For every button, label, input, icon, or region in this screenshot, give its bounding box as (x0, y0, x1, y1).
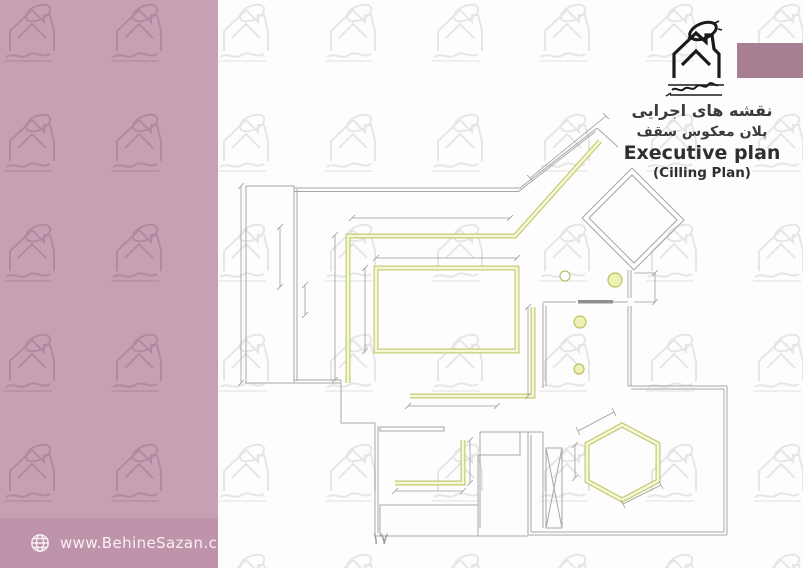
title-farsi-line2: پلان معکوس سقف (612, 122, 792, 142)
title-block: نقشه های اجرایی پلان معکوس سقف Executive… (612, 100, 792, 182)
dimension-lines (238, 113, 663, 508)
wall-thick-bar (578, 300, 613, 304)
title-english-sub: (Cilling Plan) (612, 165, 792, 182)
accent-rectangle (737, 43, 803, 78)
globe-icon (29, 532, 51, 554)
plan-walls (246, 128, 727, 536)
page-number: ۱۷ (352, 529, 408, 548)
title-farsi-line1: نقشه های اجرایی (612, 100, 792, 122)
footer-website-text: www.BehineSazan.co (60, 534, 218, 552)
title-english: Executive plan (612, 142, 792, 165)
footer-website-bar: www.BehineSazan.co (0, 518, 218, 568)
ceiling-lights (560, 271, 622, 374)
behinesazan-house-logo (658, 20, 734, 100)
